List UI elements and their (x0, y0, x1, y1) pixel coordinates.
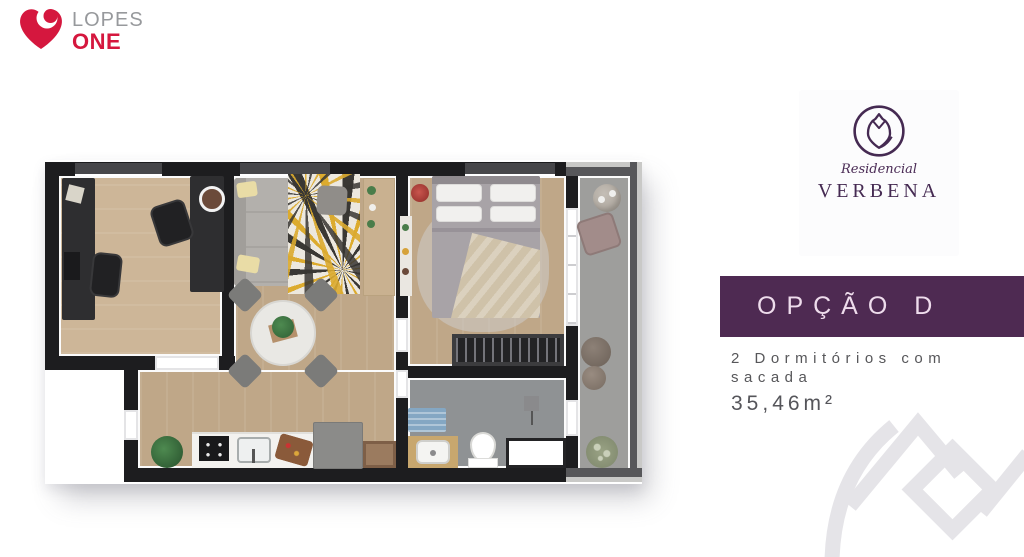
office-chair-1 (89, 252, 123, 299)
bed-pillow (490, 184, 536, 202)
sideboard-plant (367, 186, 376, 195)
flyer-page: LOPES ONE Residencial VERBENA OPÇÃO D 2 … (0, 0, 1024, 557)
bathroom-lamp-stem (531, 411, 533, 425)
bed-pillow (490, 206, 536, 222)
console-plant (402, 224, 409, 231)
option-banner: OPÇÃO D (720, 276, 1024, 337)
kitchen-plant (151, 436, 183, 468)
bathroom-window (566, 400, 578, 436)
bath-mat (408, 408, 446, 432)
office-keyboard (64, 252, 80, 280)
details-line-2: sacada (731, 368, 1021, 387)
shower-box (506, 438, 566, 468)
one-label: ONE (72, 31, 144, 53)
verbena-name: VERBENA (799, 180, 959, 203)
bathroom-lamp (524, 396, 539, 411)
window-office (75, 163, 162, 176)
door-office (155, 356, 219, 370)
verbena-watermark-icon (806, 404, 1024, 557)
ottoman (316, 185, 347, 216)
balcony-pouf (581, 337, 611, 367)
bed-duvet-fold (432, 228, 540, 232)
door-bedroom (396, 318, 408, 352)
balcony-pouf (580, 394, 598, 412)
refrigerator (313, 422, 363, 469)
kitchen-faucet (252, 449, 255, 463)
residencial-script-label: Residencial (799, 162, 959, 177)
lopes-one-logo: LOPES ONE (16, 4, 196, 56)
sideboard-plant (367, 220, 375, 228)
wall-balcony-right (630, 162, 642, 482)
balcony-pouf (582, 366, 606, 390)
door-entrance (124, 410, 138, 440)
lopes-heart-icon (16, 4, 66, 52)
wall-bottom (124, 468, 572, 482)
sideboard (363, 178, 395, 296)
toilet-tank (468, 458, 498, 468)
balcony-cup (609, 190, 616, 197)
wall-balcony-bottom (566, 468, 642, 482)
office-decor-bowl (199, 186, 225, 212)
door-bathroom (396, 370, 408, 398)
lopes-wordmark: LOPES ONE (72, 10, 144, 53)
verbena-logo-block: Residencial VERBENA (799, 90, 959, 256)
closet-wardrobe (452, 334, 564, 366)
sink-faucet (430, 450, 436, 456)
lopes-label: LOPES (72, 10, 144, 30)
bed-headboard (432, 176, 540, 184)
bed-pillow (436, 206, 482, 222)
bed-pillow (436, 184, 482, 202)
bedroom-red-plant (411, 184, 429, 202)
verbena-tulip-circle-icon (850, 102, 908, 160)
floor-plan (45, 160, 642, 484)
console-candle (402, 248, 409, 255)
window-bedroom (465, 163, 555, 176)
wall-left (45, 162, 59, 370)
dining-table-plant (272, 316, 294, 338)
balcony-plant (586, 436, 618, 468)
wall-bedroom-bathroom (408, 366, 566, 378)
double-bed (432, 176, 540, 318)
console-candle (402, 268, 409, 275)
sideboard-vase (369, 204, 376, 211)
cooktop (199, 436, 229, 461)
balcony-cup (598, 196, 605, 203)
details-line-1: 2 Dormitórios com (731, 349, 1021, 368)
bed-throw-blanket (450, 233, 540, 318)
kitchen-crate (363, 441, 396, 468)
sofa-pillow (236, 181, 258, 199)
option-label: OPÇÃO D (720, 276, 1024, 337)
